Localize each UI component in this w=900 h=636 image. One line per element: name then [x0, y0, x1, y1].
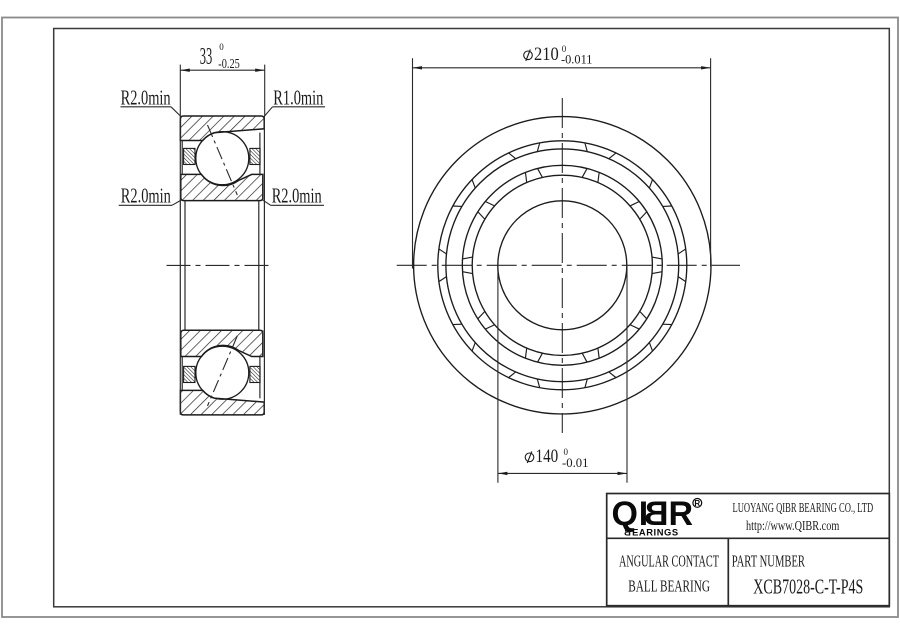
svg-text:PART NUMBER: PART NUMBER: [732, 552, 806, 571]
svg-text:EARINGS: EARINGS: [632, 527, 679, 538]
svg-text:R: R: [694, 499, 700, 508]
svg-text:BALL BEARING: BALL BEARING: [628, 577, 710, 596]
svg-text:LUOYANG QIBR BEARING CO., LTD: LUOYANG QIBR BEARING CO., LTD: [733, 500, 874, 515]
svg-text:B: B: [624, 527, 631, 538]
svg-text:ANGULAR CONTACT: ANGULAR CONTACT: [619, 552, 719, 571]
svg-text:R2.0min: R2.0min: [272, 184, 322, 208]
svg-text:0: 0: [219, 43, 224, 53]
svg-text:http://www.QIBR.com: http://www.QIBR.com: [746, 518, 840, 533]
svg-text:XCB7028-C-T-P4S: XCB7028-C-T-P4S: [753, 574, 863, 598]
svg-text:R2.0min: R2.0min: [121, 184, 171, 208]
svg-text:R1.0min: R1.0min: [273, 85, 323, 109]
svg-text:-0.25: -0.25: [218, 57, 240, 72]
svg-text:-0.01: -0.01: [562, 455, 589, 470]
svg-text:-0.011: -0.011: [561, 52, 593, 67]
svg-text:R2.0min: R2.0min: [121, 85, 171, 109]
svg-text:210: 210: [534, 44, 559, 65]
svg-text:33: 33: [200, 44, 213, 70]
svg-text:140: 140: [536, 446, 559, 467]
